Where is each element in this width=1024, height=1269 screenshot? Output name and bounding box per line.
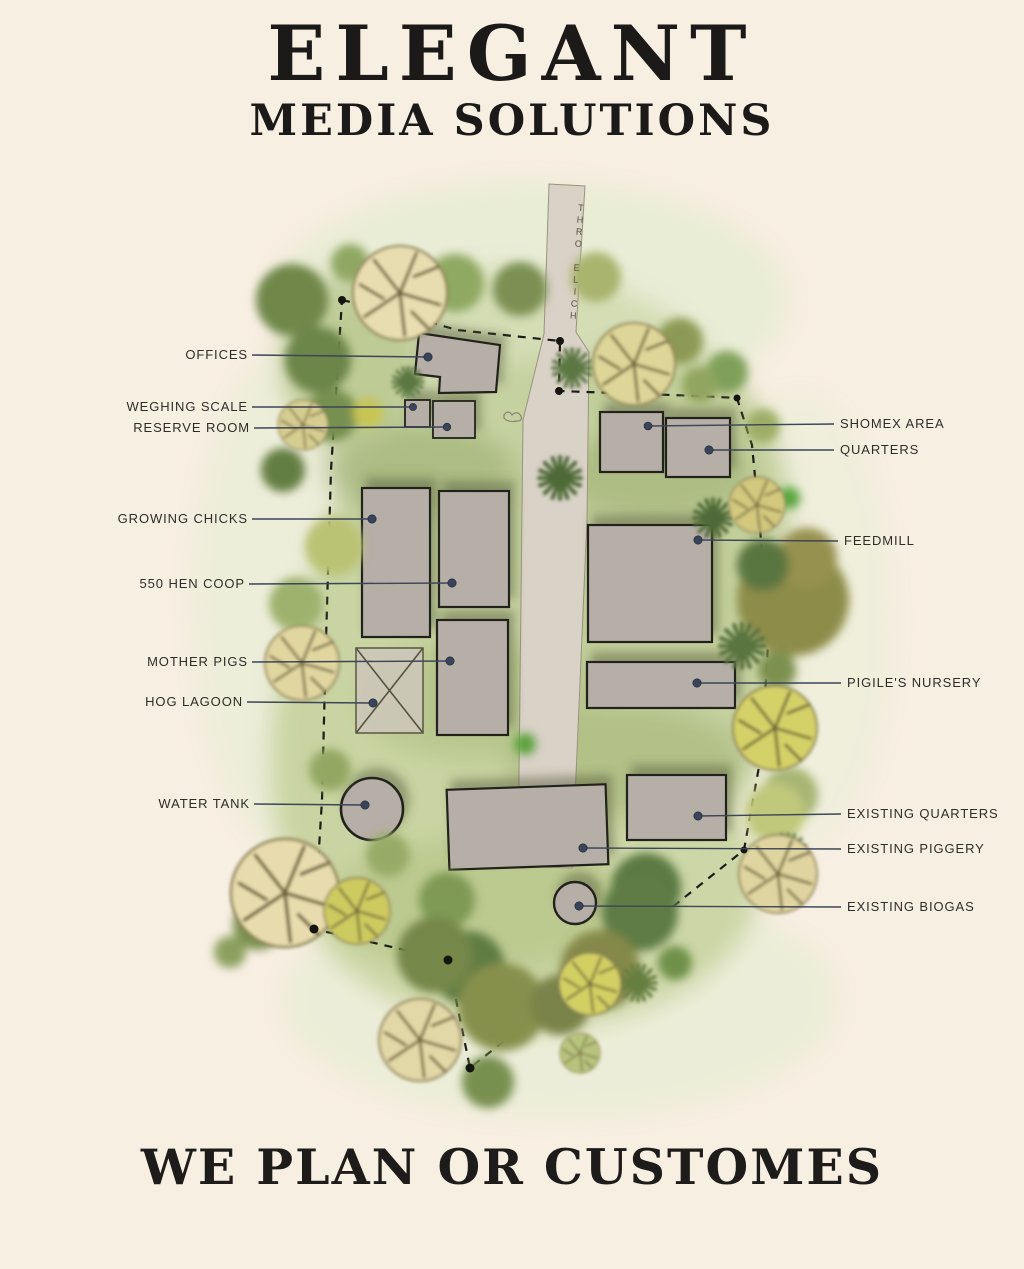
label-existing-piggery: EXISTING PIGGERY xyxy=(847,841,985,856)
leader-mother-pigs xyxy=(252,661,450,662)
existing-quarters-building xyxy=(627,775,726,840)
leader-hog-lagoon xyxy=(247,702,373,703)
label-pigiles-nursery: PIGILE'S NURSERY xyxy=(847,675,981,690)
leader-water-tank xyxy=(254,804,365,805)
label-mother-pigs: MOTHER PIGS xyxy=(147,654,248,669)
page-subtitle: MEDIA SOLUTIONS xyxy=(0,100,1024,143)
growing-chicks-building xyxy=(362,488,430,637)
label-existing-biogas: EXISTING BIOGAS xyxy=(847,899,975,914)
label-growing-chicks: GROWING CHICKS xyxy=(118,511,248,526)
label-feedmill: FEEDMILL xyxy=(844,533,915,548)
label-water-tank: WATER TANK xyxy=(158,796,250,811)
nursery-building xyxy=(587,662,735,708)
label-weighing-scale: WEGHING SCALE xyxy=(127,399,249,414)
leader-existing-biogas xyxy=(579,906,841,907)
leader-hen-coop xyxy=(249,583,452,584)
page-title: ELEGANT xyxy=(0,16,1024,92)
footer-tagline: WE PLAN OR CUSTOMES xyxy=(0,1138,1024,1196)
reserve-room-building xyxy=(433,401,475,438)
existing-piggery-building xyxy=(447,784,609,870)
hen-coop-building xyxy=(439,491,509,607)
site-plan-poster: ELEGANT MEDIA SOLUTIONS THRO ELICH OFFIC… xyxy=(0,0,1024,1269)
feedmill-building xyxy=(588,525,712,642)
label-offices: OFFICES xyxy=(185,347,248,362)
shomex-area-building xyxy=(600,412,663,472)
water-tank-structure xyxy=(341,778,403,840)
weighing-scale-building xyxy=(405,400,430,427)
label-quarters: QUARTERS xyxy=(840,442,919,457)
leader-existing-piggery xyxy=(583,848,841,849)
site-plan-canvas xyxy=(0,0,1024,1269)
leader-feedmill xyxy=(698,540,838,541)
quarters-building xyxy=(666,418,730,477)
biogas-structure xyxy=(554,882,596,924)
header: ELEGANT MEDIA SOLUTIONS xyxy=(0,16,1024,143)
label-existing-quarters: EXISTING QUARTERS xyxy=(847,806,999,821)
mother-pigs-building xyxy=(437,620,508,735)
label-hen-coop: 550 HEN COOP xyxy=(140,576,245,591)
label-hog-lagoon: HOG LAGOON xyxy=(145,694,243,709)
label-reserve-room: RESERVE ROOM xyxy=(133,420,250,435)
label-shomex-area: SHOMEX AREA xyxy=(840,416,945,431)
